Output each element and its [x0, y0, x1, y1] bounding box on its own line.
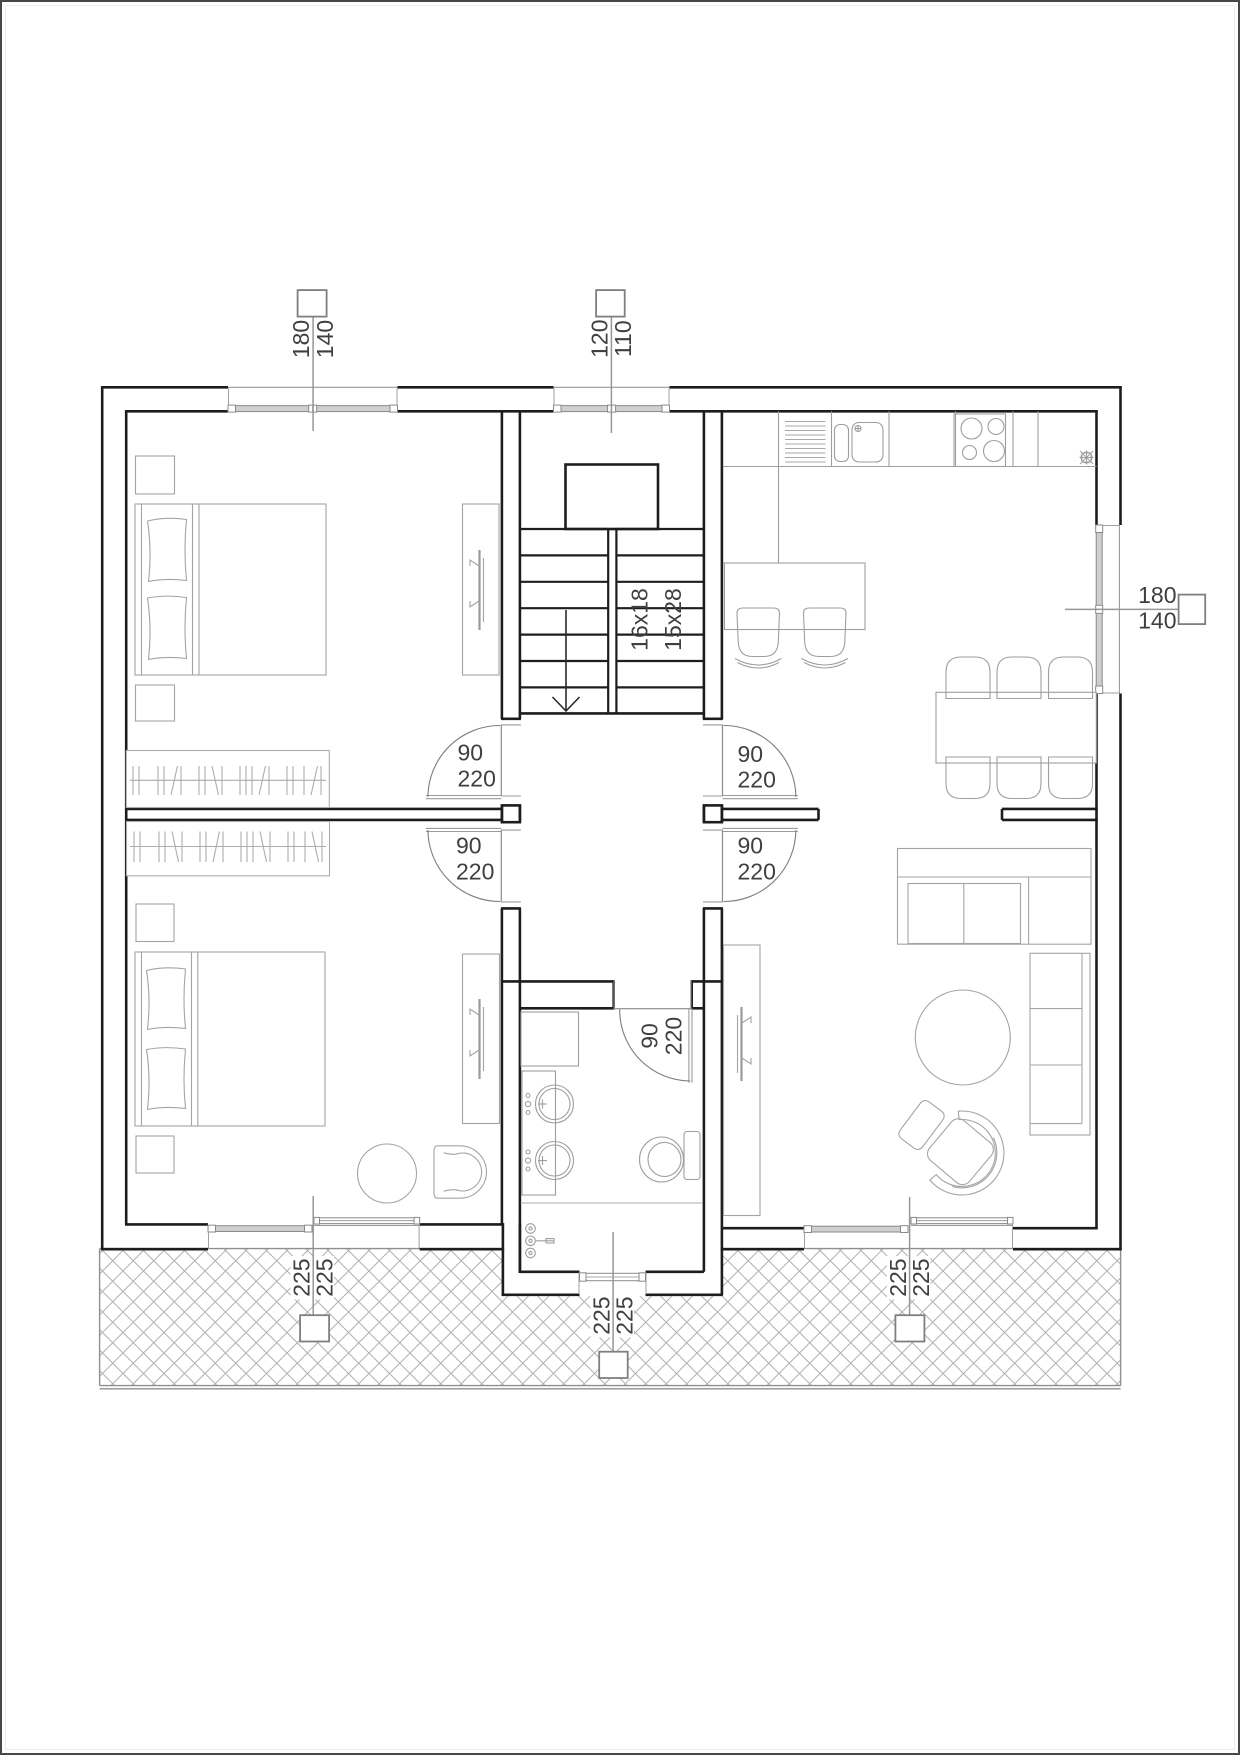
svg-text:110: 110 — [610, 320, 636, 357]
svg-text:180: 180 — [1138, 582, 1176, 608]
svg-text:90: 90 — [738, 833, 764, 859]
svg-text:90: 90 — [738, 741, 764, 767]
svg-text:140: 140 — [1138, 607, 1176, 633]
svg-text:140: 140 — [312, 320, 338, 358]
svg-text:220: 220 — [458, 766, 496, 792]
svg-text:220: 220 — [738, 767, 776, 793]
svg-text:225: 225 — [908, 1258, 934, 1296]
svg-text:180: 180 — [288, 320, 314, 358]
svg-text:225: 225 — [611, 1296, 637, 1334]
svg-text:15x28: 15x28 — [660, 588, 686, 651]
svg-text:90: 90 — [458, 740, 484, 766]
svg-text:225: 225 — [311, 1258, 337, 1296]
svg-text:90: 90 — [636, 1023, 662, 1049]
svg-text:220: 220 — [738, 859, 776, 885]
svg-text:220: 220 — [456, 859, 494, 885]
svg-text:16x18: 16x18 — [627, 588, 653, 651]
svg-text:120: 120 — [586, 320, 612, 358]
svg-text:90: 90 — [456, 833, 482, 859]
svg-text:220: 220 — [661, 1017, 687, 1055]
